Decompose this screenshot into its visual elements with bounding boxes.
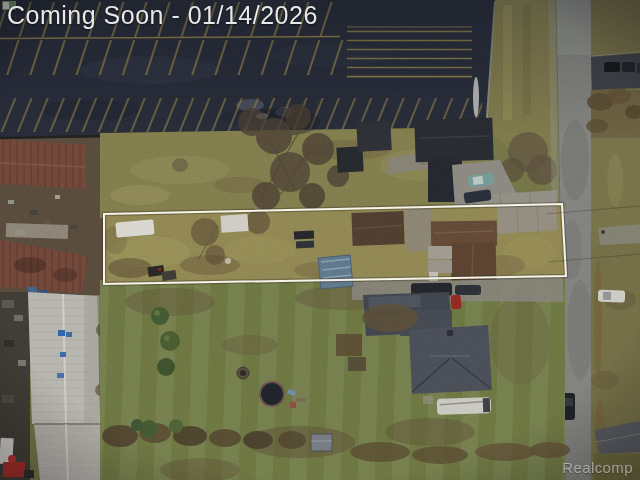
film-grain (0, 0, 640, 480)
realcomp-watermark: Realcomp (562, 459, 633, 476)
aerial-scene (0, 0, 640, 480)
aerial-photo: Coming Soon - 01/14/2026 Realcomp (0, 0, 640, 480)
coming-soon-banner: Coming Soon - 01/14/2026 (7, 1, 318, 30)
